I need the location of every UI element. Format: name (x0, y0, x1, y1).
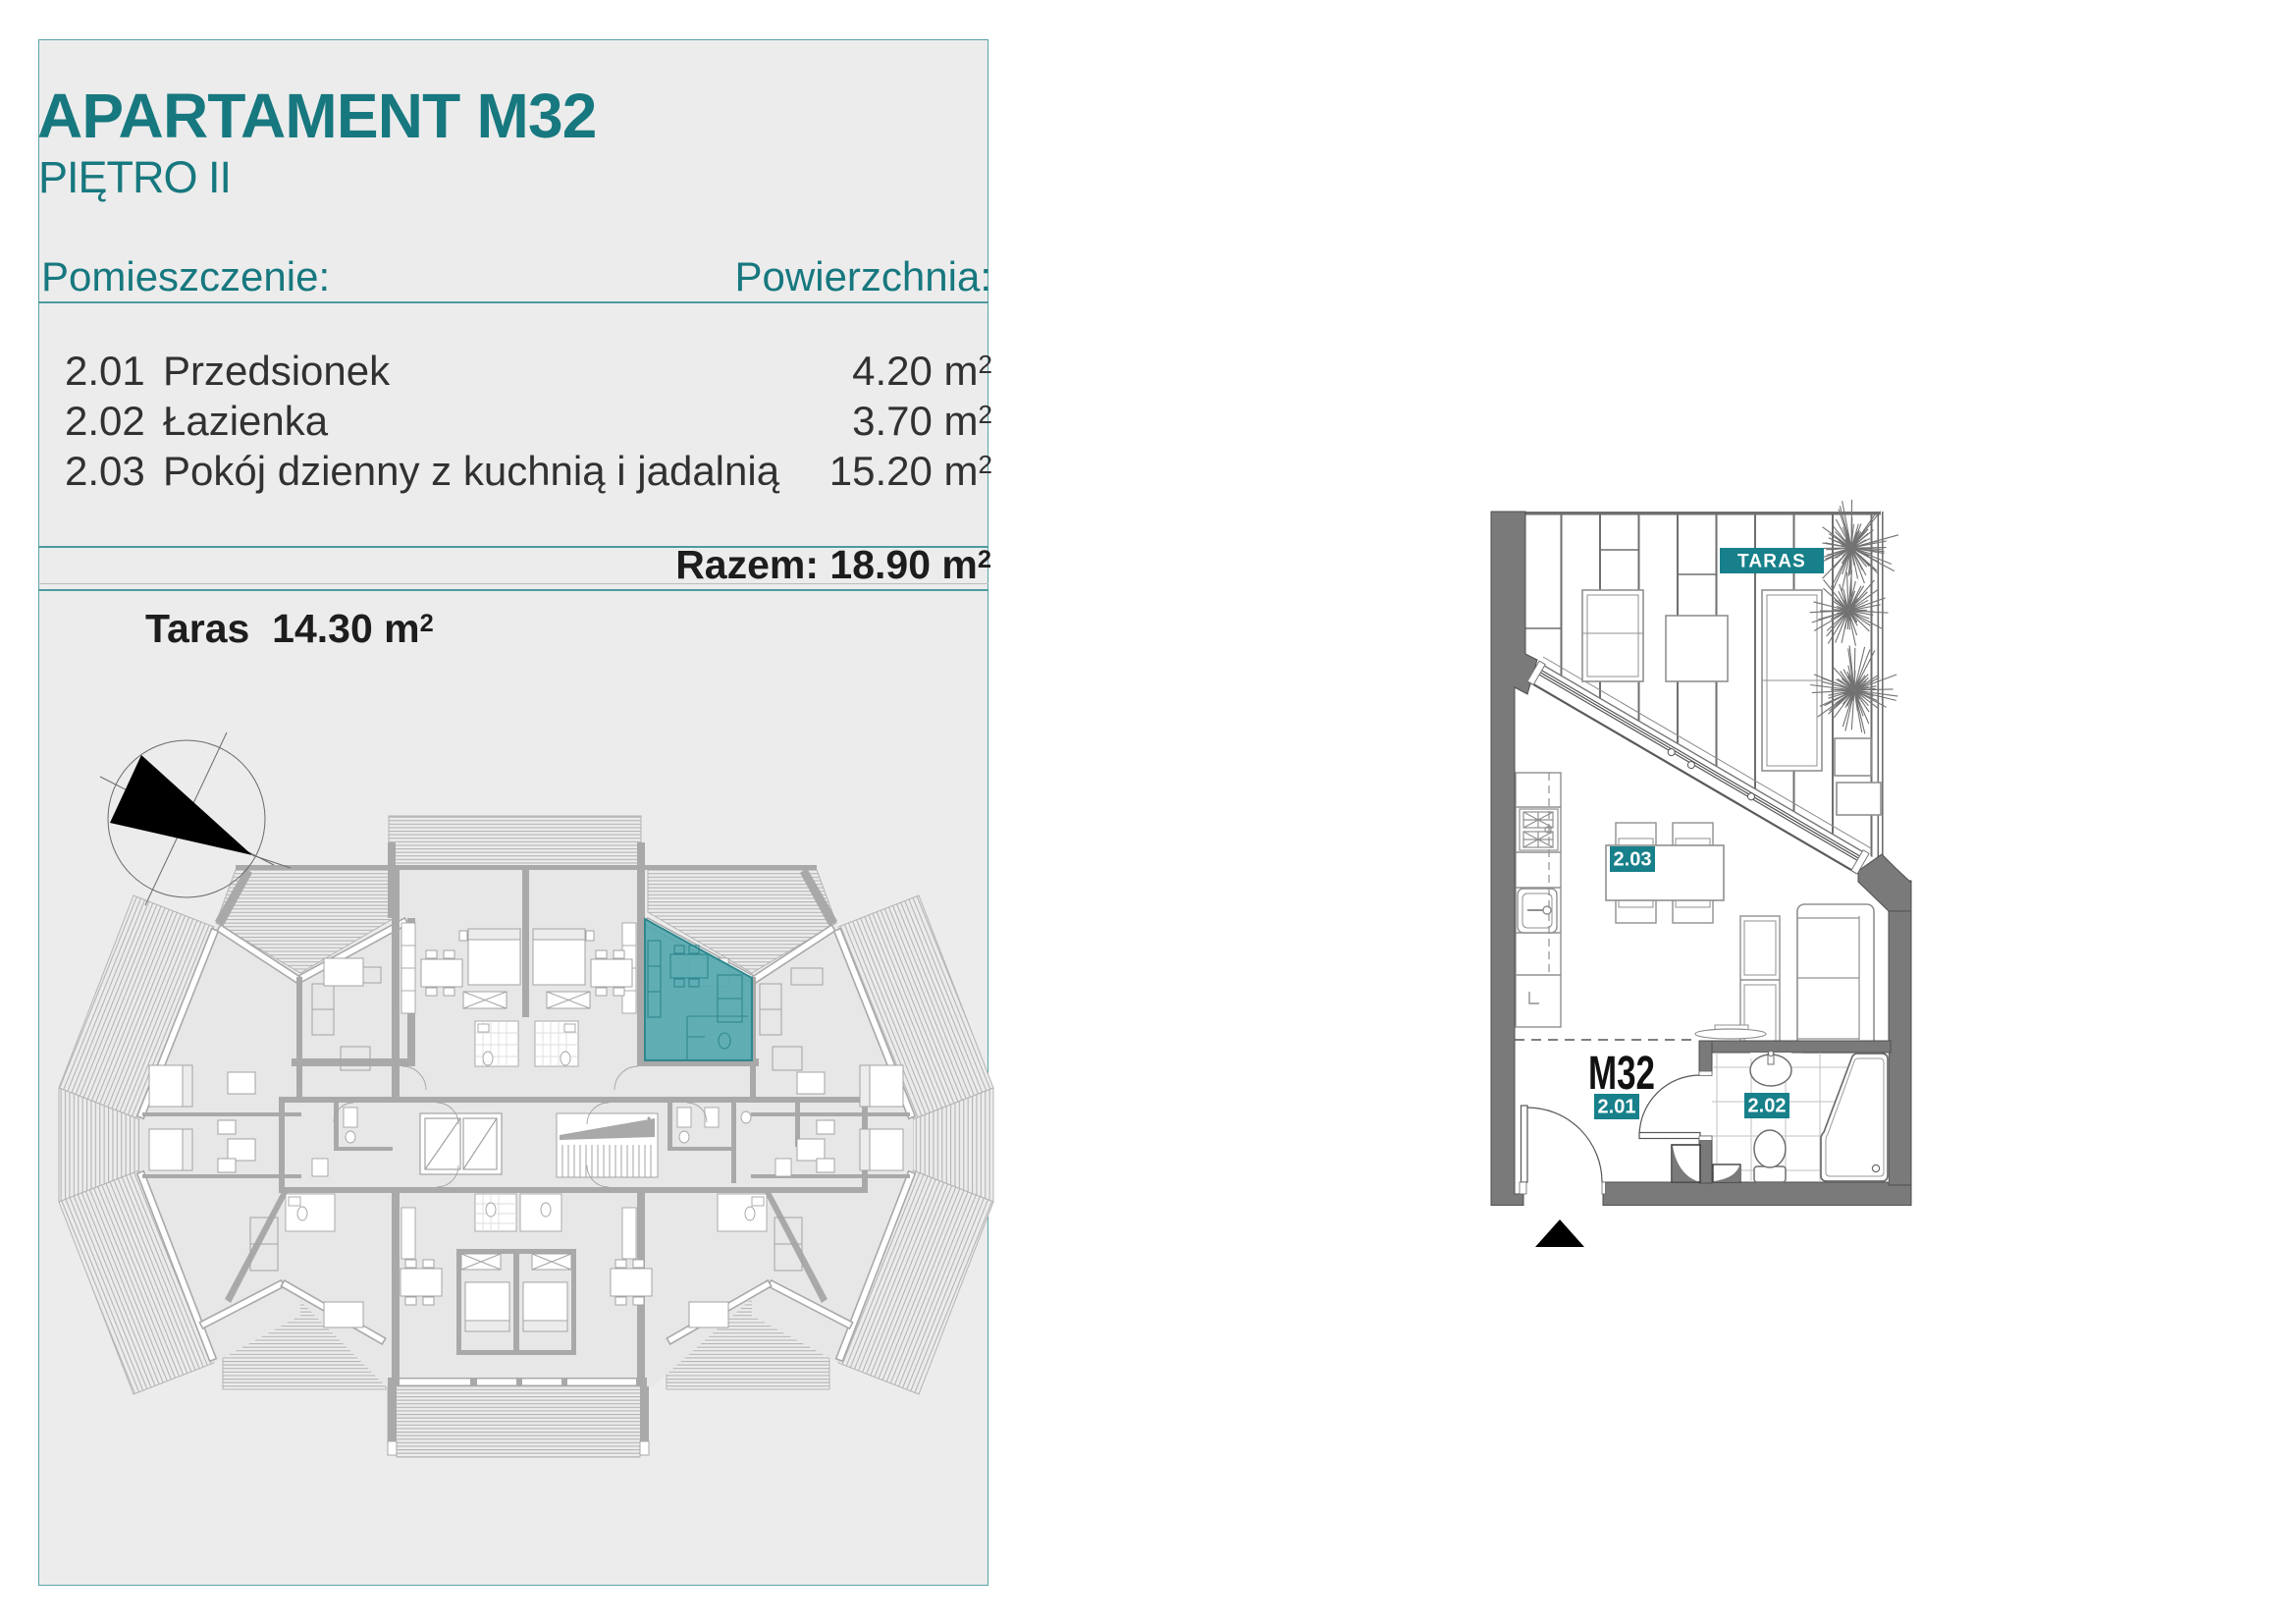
svg-text:2.03: 2.03 (1614, 849, 1652, 871)
svg-text:M32: M32 (1588, 1048, 1655, 1100)
svg-text:TARAS: TARAS (1737, 552, 1806, 572)
svg-text:2.02: 2.02 (1748, 1096, 1787, 1117)
svg-text:2.01: 2.01 (1598, 1097, 1636, 1118)
